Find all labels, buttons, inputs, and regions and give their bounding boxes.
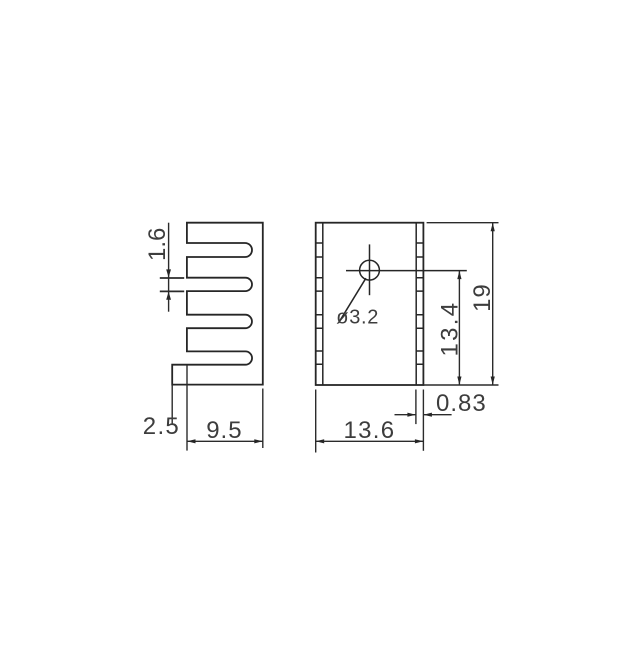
svg-text:2.5: 2.5: [143, 413, 180, 440]
svg-text:0.83: 0.83: [436, 390, 487, 417]
svg-text:ø3.2: ø3.2: [336, 306, 379, 328]
svg-text:1.6: 1.6: [144, 228, 171, 261]
svg-text:13.6: 13.6: [344, 417, 396, 444]
svg-text:13.4: 13.4: [437, 301, 464, 357]
svg-text:19: 19: [469, 283, 496, 312]
svg-text:9.5: 9.5: [206, 417, 242, 444]
